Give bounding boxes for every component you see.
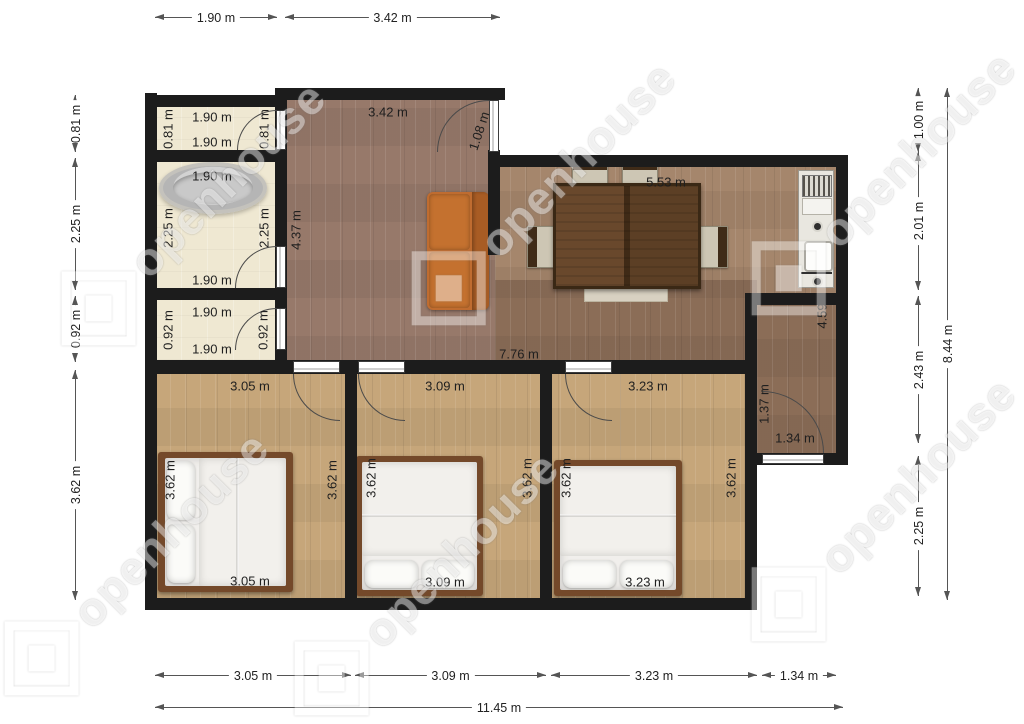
wall [145, 288, 287, 300]
room-dim-label: 3.09 m [425, 575, 465, 590]
room-dim-label: 1.90 m [192, 305, 232, 320]
room-dim-label: 2.25 m [257, 208, 272, 248]
room-dim-label: 1.90 m [192, 273, 232, 288]
room-dim-label: 4.59 [815, 303, 830, 328]
wall [275, 88, 505, 100]
room-dim-label: 3.62 m [724, 458, 739, 498]
room-dim-label: 0.92 m [161, 310, 176, 350]
dining-table [553, 183, 701, 289]
dimension-line: 8.44 m [947, 88, 948, 600]
duvet [362, 462, 477, 556]
pillow [563, 560, 616, 588]
duvet-fold [560, 514, 676, 517]
openhouse-logo-icon [295, 641, 369, 715]
room-dim-label: 3.62 m [325, 460, 340, 500]
door-dim-label: 1.34 m [775, 431, 815, 446]
dimension-line: 3.62 m [75, 370, 76, 600]
room-dim-label: 5.53 m [646, 175, 686, 190]
wall [145, 150, 287, 162]
door-threshold [276, 246, 286, 288]
table-grain [556, 186, 698, 286]
room-dim-label: 1.90 m [192, 110, 232, 125]
dimension-line: 1.90 m [155, 17, 277, 18]
room-dim-label: 1.90 m [192, 342, 232, 357]
dish-rack-icon [802, 198, 832, 215]
wall [145, 95, 285, 107]
dimension-line: 2.43 m [918, 296, 919, 443]
room-dim-label: 3.62 m [163, 460, 178, 500]
room-dim-label: 3.62 m [520, 458, 535, 498]
dimension-line: 3.09 m [355, 675, 546, 676]
wall [145, 93, 157, 610]
wall [488, 150, 500, 255]
dimension-line: 3.42 m [285, 17, 500, 18]
duvet-fold [362, 514, 477, 517]
door-threshold [358, 361, 405, 373]
wall [836, 155, 848, 465]
pillow [365, 560, 418, 588]
room-dim-label: 3.23 m [625, 575, 665, 590]
kitchen-counter [798, 170, 834, 288]
wall [745, 360, 757, 610]
door-threshold [276, 110, 286, 150]
burner-knob-icon [812, 276, 823, 287]
chair-backrest [528, 227, 537, 267]
room-dim-label: 3.62 m [559, 458, 574, 498]
door-threshold [276, 308, 286, 350]
room-dim-label: 3.05 m [230, 379, 270, 394]
room-dim-label: 3.23 m [628, 379, 668, 394]
sofa-cushion [429, 194, 470, 250]
double-bed [158, 452, 293, 592]
dimension-line: 3.23 m [551, 675, 757, 676]
wall [745, 293, 757, 360]
wall [540, 374, 552, 598]
dimension-line: 11.45 m [155, 707, 843, 708]
door-threshold [489, 100, 499, 152]
room-dim-label: 3.62 m [364, 458, 379, 498]
wall [757, 293, 848, 305]
door-threshold [293, 361, 340, 373]
pillow [167, 524, 195, 583]
openhouse-logo-icon [5, 621, 79, 695]
wall [145, 598, 757, 610]
chair-backrest [718, 227, 727, 267]
dimension-line: 2.25 m [75, 158, 76, 290]
room-dim-label: 3.05 m [230, 574, 270, 589]
sofa [427, 192, 489, 310]
room-dim-label: 0.92 m [256, 310, 271, 350]
duvet [560, 466, 676, 556]
wall [345, 374, 357, 598]
dimension-line: 0.92 m [75, 296, 76, 362]
door-threshold [565, 361, 612, 373]
duvet-fold [236, 458, 239, 586]
wall [145, 360, 757, 374]
room-dim-label: 3.42 m [368, 105, 408, 120]
room-dim-label: 2.25 m [161, 208, 176, 248]
dimension-line: 1.00 m [918, 88, 919, 152]
stove-icon [802, 175, 832, 197]
counter-divider [801, 272, 832, 274]
entry-door-threshold [762, 454, 824, 464]
room-dim-label: 4.37 m [289, 210, 304, 250]
room-dim-label: 7.76 m [499, 347, 539, 362]
door-dim-label: 1.37 m [757, 384, 772, 424]
room-dim-label: 0.81 m [257, 109, 272, 149]
burner-knob-icon [812, 221, 823, 232]
dimension-line: 3.05 m [155, 675, 351, 676]
room-dim-label: 0.81 m [161, 109, 176, 149]
openhouse-logo-icon [752, 567, 826, 641]
dimension-line: 2.25 m [918, 456, 919, 596]
room-dim-label: 3.09 m [425, 379, 465, 394]
dimension-line: 0.81 m [75, 95, 76, 152]
sofa-cushion [429, 252, 470, 308]
wall [493, 155, 848, 167]
dimension-line: 1.34 m [762, 675, 836, 676]
room-dim-label: 1.90 m [192, 169, 232, 184]
duvet [199, 458, 286, 586]
sofa-backrest [472, 192, 489, 310]
sink-icon [804, 241, 833, 272]
floor-plan-canvas: 1.90 m 1.90 m 0.81 m 0.81 m 1.90 m 1.90 … [0, 0, 1024, 724]
room-dim-label: 1.90 m [192, 135, 232, 150]
dimension-line: 2.01 m [918, 152, 919, 290]
